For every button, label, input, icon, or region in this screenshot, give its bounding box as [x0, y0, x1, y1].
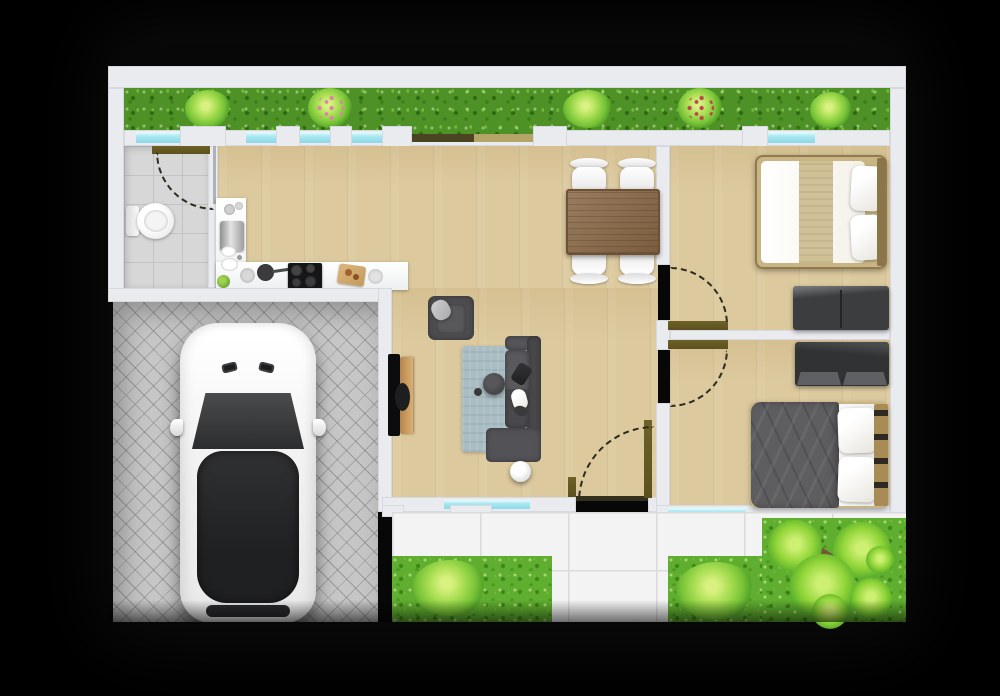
cooktop-burner [291, 265, 302, 276]
cooking-pot [235, 202, 243, 210]
dresser-front-panel [797, 372, 841, 385]
hedge-bush [810, 92, 852, 128]
bed-bottom-headboard [874, 404, 888, 506]
wall-pillar [276, 126, 300, 148]
car-wiper [258, 361, 275, 373]
exterior-wall-left [108, 88, 124, 302]
wall-pillar [742, 126, 768, 148]
hedge-bush [185, 90, 231, 128]
driveway-paving [113, 302, 378, 622]
sink-faucet [237, 255, 242, 260]
car-mirror-right [313, 419, 326, 436]
window-kitchen-3 [352, 132, 382, 143]
wall-pillar [330, 126, 352, 148]
tv-speaker [395, 383, 410, 411]
hedge-over-sliding-door [412, 124, 533, 134]
bedroom-bottom-door-panel [668, 340, 728, 349]
bed-top-runner [799, 161, 833, 263]
car-sunroof-cabin [197, 451, 299, 603]
cooktop-burner [305, 276, 316, 287]
garage-wall-top [108, 288, 390, 302]
tree-foliage [866, 546, 894, 574]
bed-bottom-pillow [837, 407, 877, 453]
hedge-bush [563, 90, 613, 128]
exterior-wall-top [108, 66, 906, 88]
car-windshield [192, 393, 304, 449]
food-item [345, 269, 352, 276]
window-kitchen-2 [300, 132, 330, 143]
window-bathroom-top [136, 132, 180, 143]
toilet-seat [144, 210, 168, 232]
car-body [180, 323, 316, 622]
car-mirror-left [170, 419, 183, 436]
bench-cushion-split [840, 290, 842, 328]
exterior-wall-right [890, 88, 906, 518]
cooktop-burner [306, 264, 315, 273]
dresser-front-panel [843, 372, 887, 385]
bedroom-divider-wall [670, 330, 890, 340]
kitchen-sink-basin [221, 246, 236, 257]
dining-chair-back [570, 273, 608, 284]
wall-pillar [382, 126, 412, 148]
wall-pillar [180, 126, 226, 148]
bedroom-bottom-dresser [795, 342, 889, 386]
hedge-bush-berries [678, 88, 722, 128]
bed-bottom-pillow [837, 456, 877, 502]
bedroom-top-bench [793, 286, 889, 330]
dining-chair-back [618, 273, 656, 284]
bedroom-wall-lower [656, 403, 670, 520]
kitchen-sink-basin [221, 258, 238, 271]
car-wiper [221, 361, 238, 373]
cooktop-burner [292, 278, 301, 287]
floor-plan-scene [0, 0, 1000, 696]
wall-pillar [533, 126, 567, 148]
food-item [353, 274, 359, 280]
entry-door-jamb [568, 477, 576, 497]
decor-item [474, 388, 482, 396]
window-kitchen-1 [246, 132, 276, 143]
counter-plate [240, 268, 255, 283]
coffee-table [483, 373, 505, 395]
dining-table [566, 189, 660, 255]
cooking-pot [224, 204, 235, 215]
bottom-shadow-fade [108, 600, 906, 622]
ball-lamp [510, 461, 531, 482]
counter-plate [368, 269, 383, 284]
bed-top-headboard [877, 158, 886, 266]
bed-bottom-duvet [751, 402, 839, 508]
sofa-chaise [486, 428, 541, 462]
cutting-board [337, 263, 367, 287]
sliding-door-panel-wood [474, 134, 533, 142]
window-bedroom-top [765, 132, 815, 143]
counter-plant [217, 275, 230, 288]
sliding-door-track-dark [412, 134, 474, 142]
hedge-bush-flowering [308, 88, 352, 128]
